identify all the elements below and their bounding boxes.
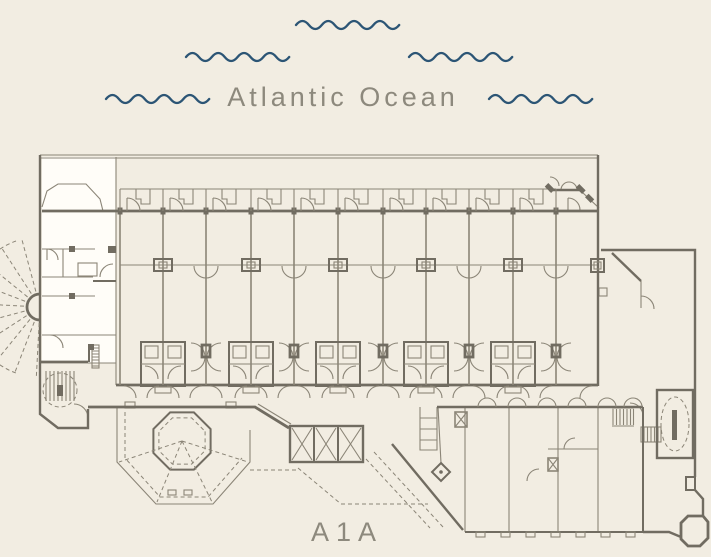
lobby-arches [476,398,642,537]
wave-icon [106,95,209,103]
site-plan: Atlantic Ocean A1A [0,0,711,557]
wave-icon [409,53,512,61]
elevator-bank [292,428,361,460]
wave-icon [186,53,289,61]
wave-icon [296,21,399,29]
unit-bays [118,189,593,398]
plan-fixtures [57,183,677,474]
plan-walls [27,155,708,546]
floor-plan [0,0,711,557]
highlighted-unit[interactable] [42,157,116,363]
wave-icon [489,95,592,103]
ocean-wave-icons [106,21,592,103]
